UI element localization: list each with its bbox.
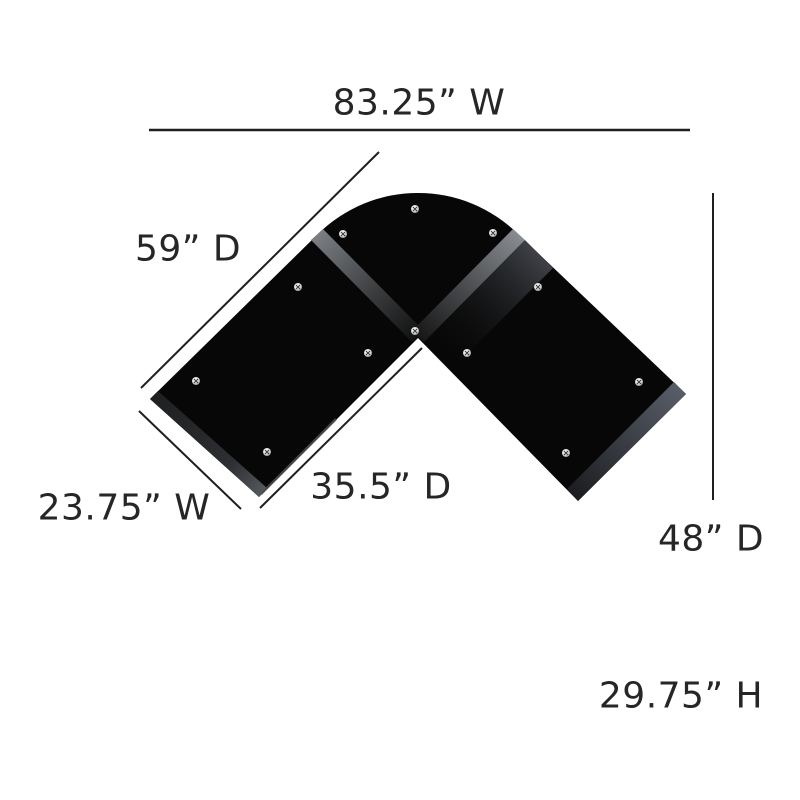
screw [411, 327, 419, 335]
dimension-label-left-depth: 59” D [135, 229, 241, 270]
dimension-label-height: 29.75” H [599, 676, 763, 717]
dimension-label-inner-depth: 35.5” D [310, 467, 451, 508]
screw [364, 349, 372, 357]
screw [263, 448, 271, 456]
screw [534, 283, 542, 291]
screw [339, 230, 347, 238]
dimension-diagram: 83.25” W 59” D 23.75” W 35.5” D 48” D 29… [0, 0, 800, 800]
screw [192, 377, 200, 385]
dimension-label-bottom-left-width: 23.75” W [38, 488, 211, 529]
dimension-label-top-width: 83.25” W [333, 83, 506, 124]
screw [411, 205, 419, 213]
screw [463, 349, 471, 357]
screw [294, 283, 302, 291]
screw [635, 378, 643, 386]
dimension-label-right-depth: 48” D [658, 519, 764, 560]
screw [489, 229, 497, 237]
screw [562, 449, 570, 457]
